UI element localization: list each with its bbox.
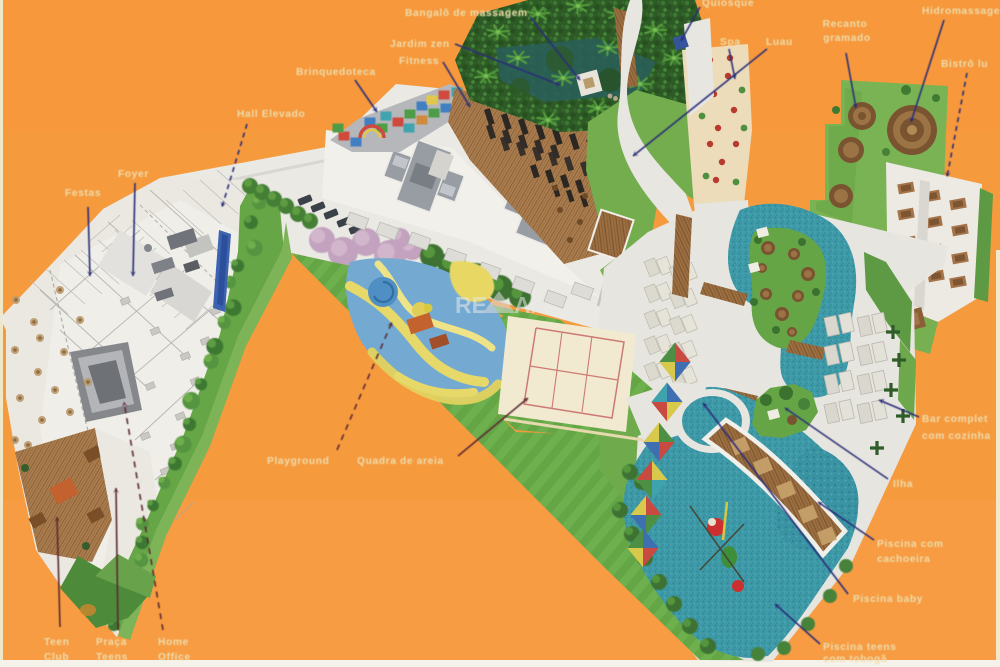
svg-text:Teens: Teens (96, 652, 128, 663)
svg-text:Jardim zen: Jardim zen (390, 39, 450, 50)
svg-text:Praça: Praça (96, 637, 127, 648)
svg-text:Spa: Spa (720, 37, 741, 48)
svg-text:AX: AX (514, 292, 547, 318)
svg-text:Brinquedoteca: Brinquedoteca (296, 67, 376, 78)
svg-text:Bistrô lu: Bistrô lu (941, 59, 988, 70)
svg-text:Home: Home (158, 637, 189, 648)
svg-text:Foyer: Foyer (118, 169, 149, 180)
svg-text:Hidromassage: Hidromassage (922, 6, 1000, 17)
svg-text:com tobogã: com tobogã (823, 654, 887, 665)
svg-text:Office: Office (158, 652, 191, 663)
svg-text:Bar complet: Bar complet (922, 414, 988, 425)
svg-text:Recanto: Recanto (823, 19, 868, 30)
svg-text:Luau: Luau (766, 37, 793, 48)
svg-text:Playground: Playground (267, 456, 330, 467)
svg-text:Quiosque: Quiosque (702, 0, 754, 9)
svg-text:Club: Club (44, 652, 69, 663)
svg-text:Piscina com: Piscina com (877, 539, 944, 550)
svg-text:cachoeira: cachoeira (877, 554, 930, 565)
svg-text:gramado: gramado (823, 33, 871, 44)
svg-text:Hall Elevado: Hall Elevado (237, 109, 305, 120)
svg-text:Quadra de areia: Quadra de areia (357, 456, 444, 467)
svg-text:Piscina teens: Piscina teens (823, 642, 897, 653)
svg-text:RE: RE (455, 292, 487, 318)
svg-text:Teen: Teen (44, 637, 70, 648)
svg-text:Ilha: Ilha (893, 479, 913, 490)
svg-text:com cozinha: com cozinha (922, 431, 991, 442)
svg-text:Festas: Festas (65, 188, 101, 199)
svg-text:Bangalô de massagem: Bangalô de massagem (405, 8, 528, 19)
svg-text:Piscina baby: Piscina baby (853, 594, 923, 605)
svg-text:Fitness: Fitness (399, 56, 439, 67)
